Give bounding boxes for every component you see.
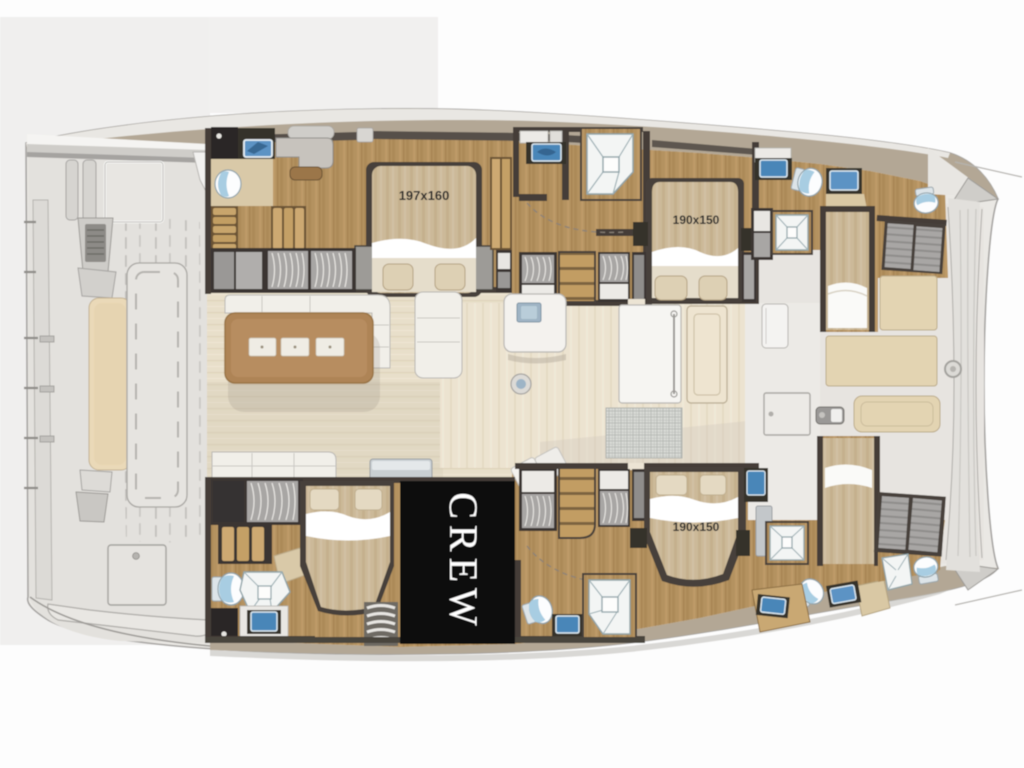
svg-text:197x160: 197x160 <box>399 188 450 203</box>
svg-text:CREW: CREW <box>441 492 486 632</box>
svg-text:190x150: 190x150 <box>673 520 720 534</box>
svg-text:190x150: 190x150 <box>673 213 720 227</box>
